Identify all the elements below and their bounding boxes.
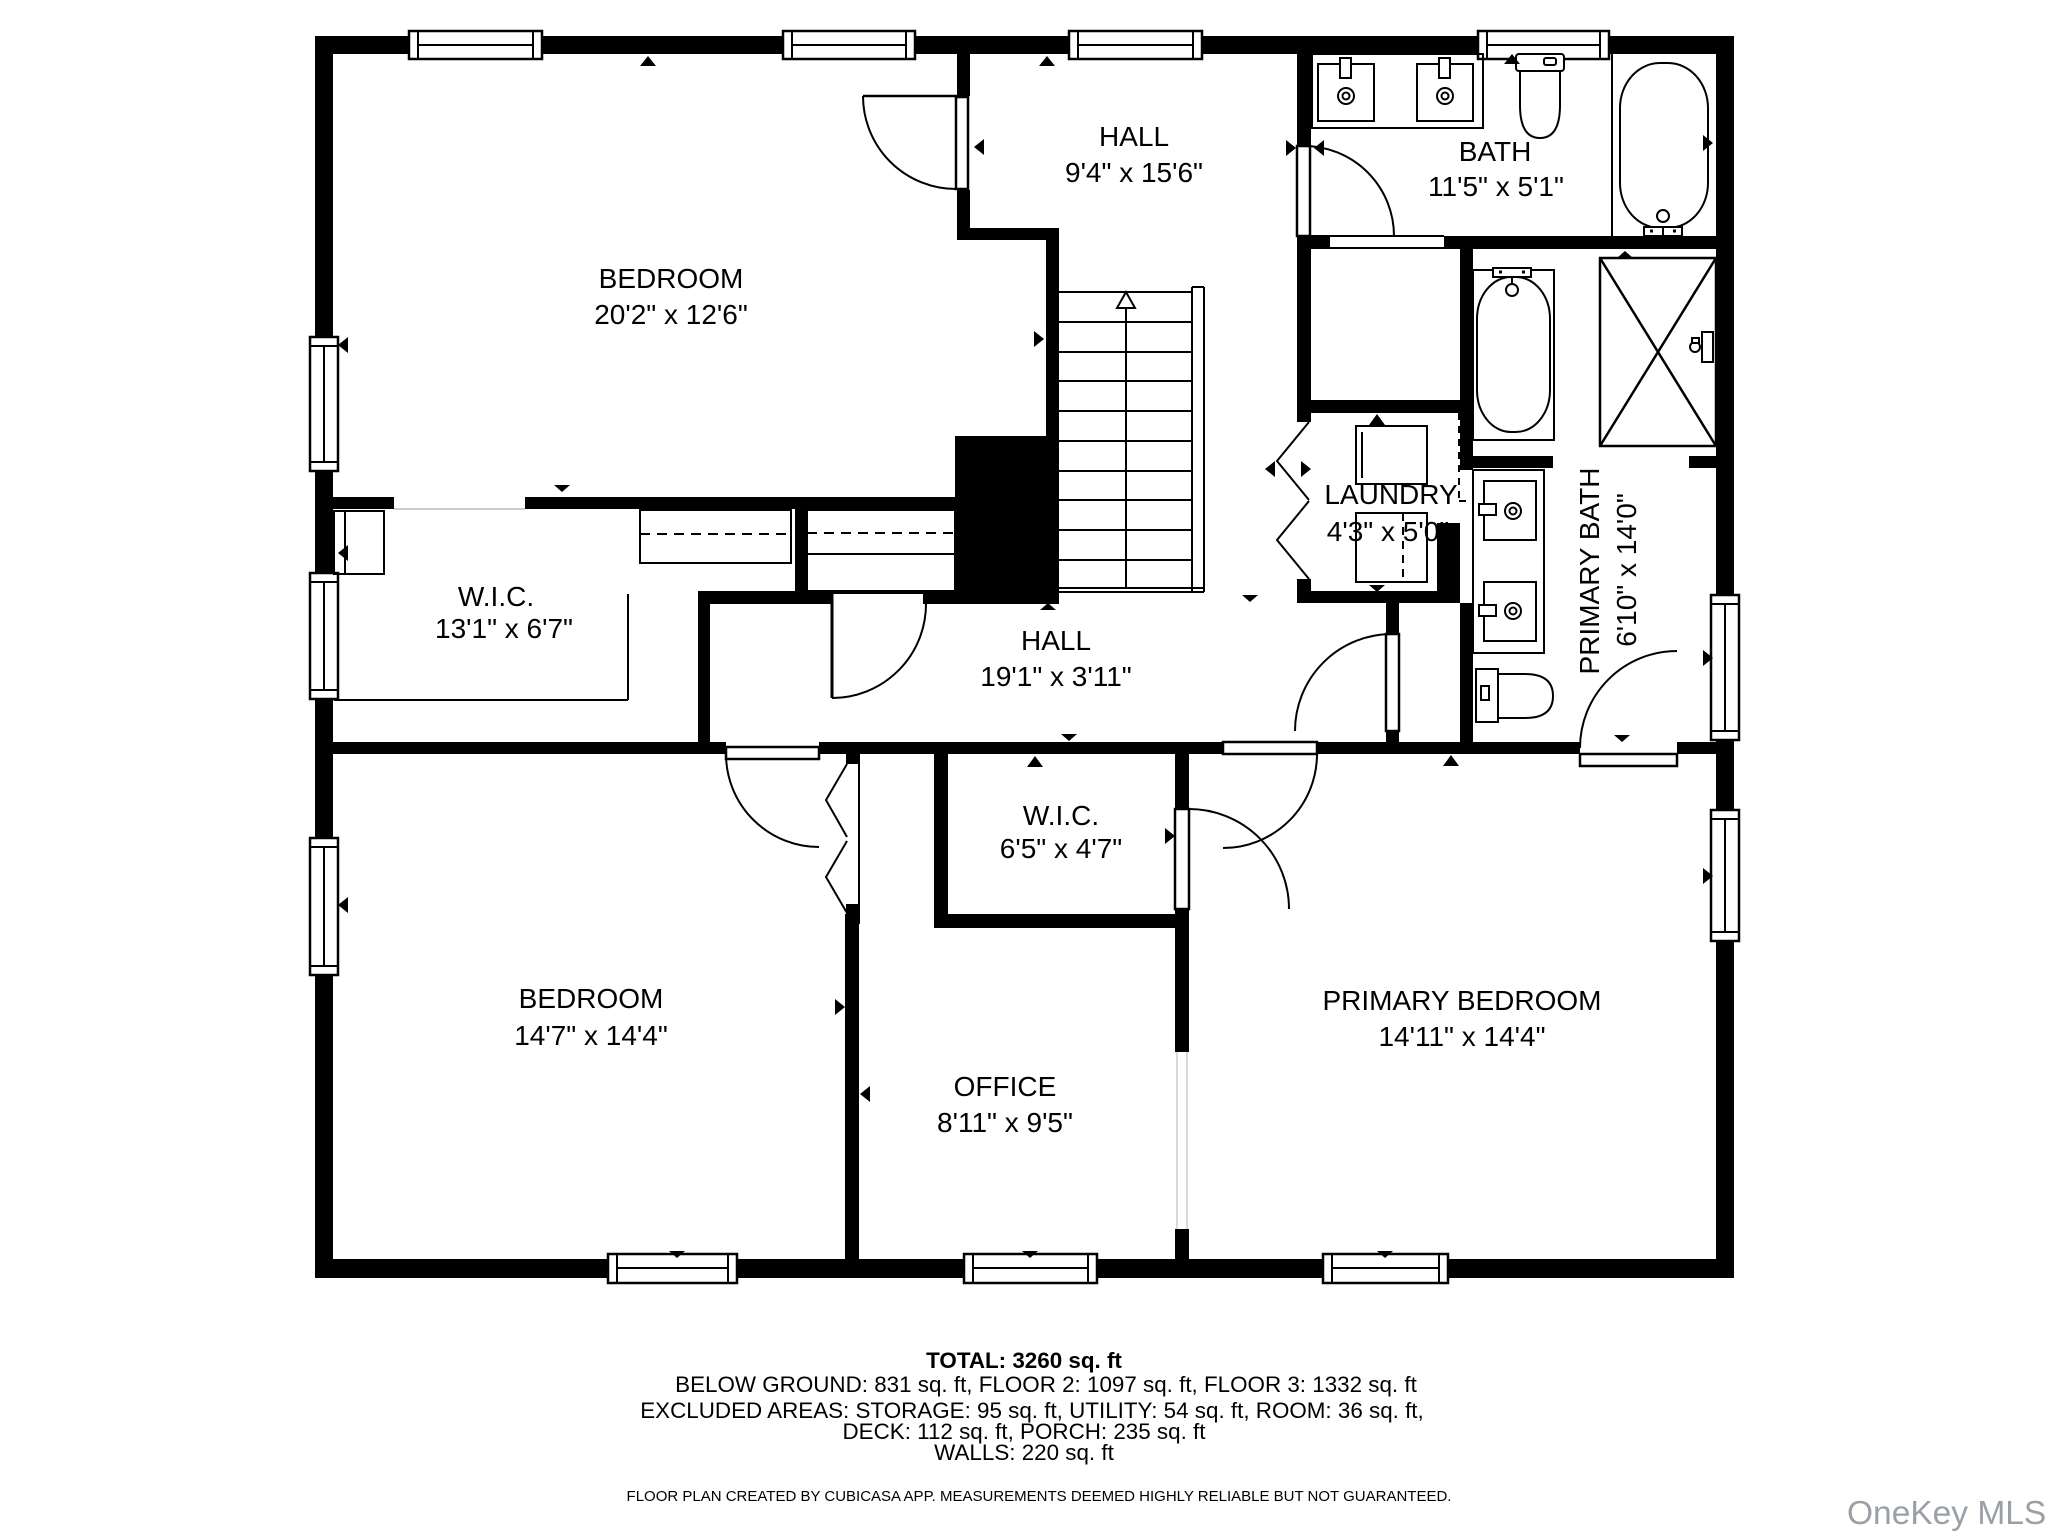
svg-text:6'10" x 14'0": 6'10" x 14'0" [1611,493,1642,647]
svg-text:8'11" x 9'5": 8'11" x 9'5" [937,1107,1073,1138]
svg-text:W.I.C.: W.I.C. [1023,800,1099,831]
svg-text:20'2" x 12'6": 20'2" x 12'6" [594,299,748,330]
svg-text:BEDROOM: BEDROOM [599,263,744,294]
svg-text:4'3" x 5'0": 4'3" x 5'0" [1327,516,1449,547]
svg-text:BATH: BATH [1459,136,1532,167]
svg-text:FLOOR PLAN CREATED BY CUBICASA: FLOOR PLAN CREATED BY CUBICASA APP. MEAS… [627,1488,1452,1505]
svg-text:14'11" x 14'4": 14'11" x 14'4" [1378,1021,1545,1052]
svg-text:OneKey MLS: OneKey MLS [1847,1495,2046,1532]
svg-text:9'4" x 15'6": 9'4" x 15'6" [1065,157,1203,188]
svg-text:TOTAL: 3260 sq. ft: TOTAL: 3260 sq. ft [926,1348,1122,1373]
svg-text:BEDROOM: BEDROOM [519,983,664,1014]
svg-text:BELOW GROUND: 831 sq. ft, FLOO: BELOW GROUND: 831 sq. ft, FLOOR 2: 1097 … [675,1372,1417,1397]
svg-text:HALL: HALL [1021,625,1091,656]
svg-text:PRIMARY BEDROOM: PRIMARY BEDROOM [1322,985,1601,1016]
svg-text:PRIMARY BATH: PRIMARY BATH [1574,468,1605,675]
svg-text:13'1" x 6'7": 13'1" x 6'7" [435,613,573,644]
svg-text:WALLS: 220 sq. ft: WALLS: 220 sq. ft [934,1440,1114,1465]
svg-text:14'7" x 14'4": 14'7" x 14'4" [514,1020,668,1051]
svg-text:HALL: HALL [1099,121,1169,152]
svg-text:19'1" x 3'11": 19'1" x 3'11" [980,661,1131,692]
svg-text:11'5" x 5'1": 11'5" x 5'1" [1428,171,1564,202]
svg-text:OFFICE: OFFICE [954,1071,1057,1102]
svg-text:W.I.C.: W.I.C. [458,581,534,612]
svg-text:6'5" x 4'7": 6'5" x 4'7" [1000,833,1122,864]
svg-text:LAUNDRY: LAUNDRY [1324,479,1458,510]
